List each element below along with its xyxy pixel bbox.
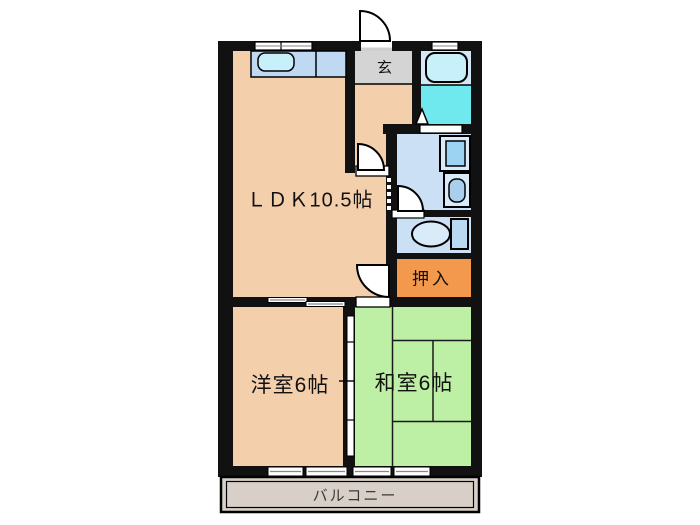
oshiire-label: 押入 [412, 265, 452, 290]
bathtub [426, 53, 467, 82]
window-kitchen [255, 42, 312, 50]
bath-washing-area [421, 85, 471, 124]
kitchen-sink [258, 53, 294, 71]
balcony-label: バルコニー [313, 485, 398, 506]
wall-mid-horizontal [222, 297, 471, 307]
floor-plan-drawing [0, 0, 700, 525]
washing-machine-pan [440, 136, 470, 171]
japanese-room-label: 和室6帖 [375, 367, 454, 397]
western-room-label: 洋室6帖 [251, 369, 330, 399]
floor-plan: ＬＤＫ10.5帖 玄 押入 洋室6帖 和室6帖 バルコニー [0, 0, 700, 525]
wall-left [218, 41, 233, 477]
ldk-label: ＬＤＫ10.5帖 [247, 184, 374, 213]
window-bath [432, 42, 458, 50]
wall-bottom [218, 466, 482, 477]
bath-door [420, 125, 462, 133]
genkan-label: 玄 [377, 57, 393, 78]
washbasin [444, 173, 470, 207]
entrance-door-swing [360, 11, 392, 51]
wall-right [471, 41, 482, 477]
wall-toilet-oshiire [387, 253, 471, 259]
toilet [412, 219, 468, 249]
kitchen-counter [251, 51, 346, 77]
